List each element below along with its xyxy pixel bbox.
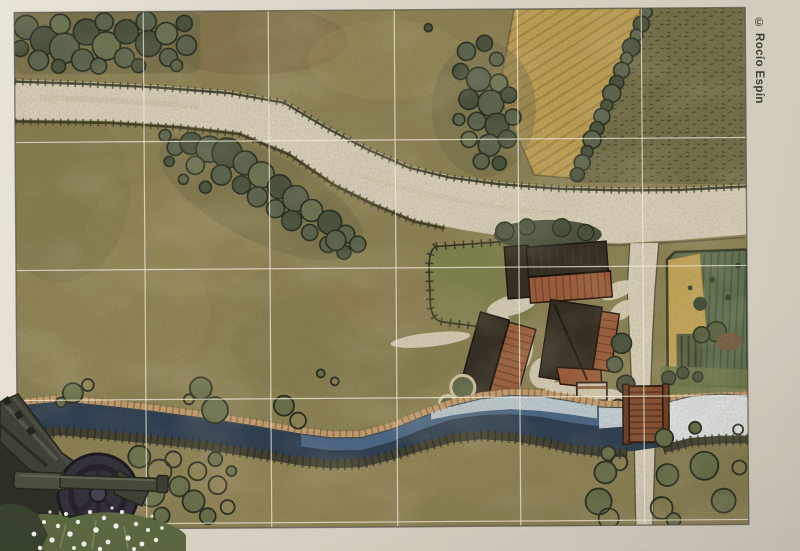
battle-map [0,3,767,533]
artist-credit: © Rocío Espín [753,17,765,104]
book-page-photo: © Rocío Espín [0,0,800,551]
map-illustration [0,0,800,551]
